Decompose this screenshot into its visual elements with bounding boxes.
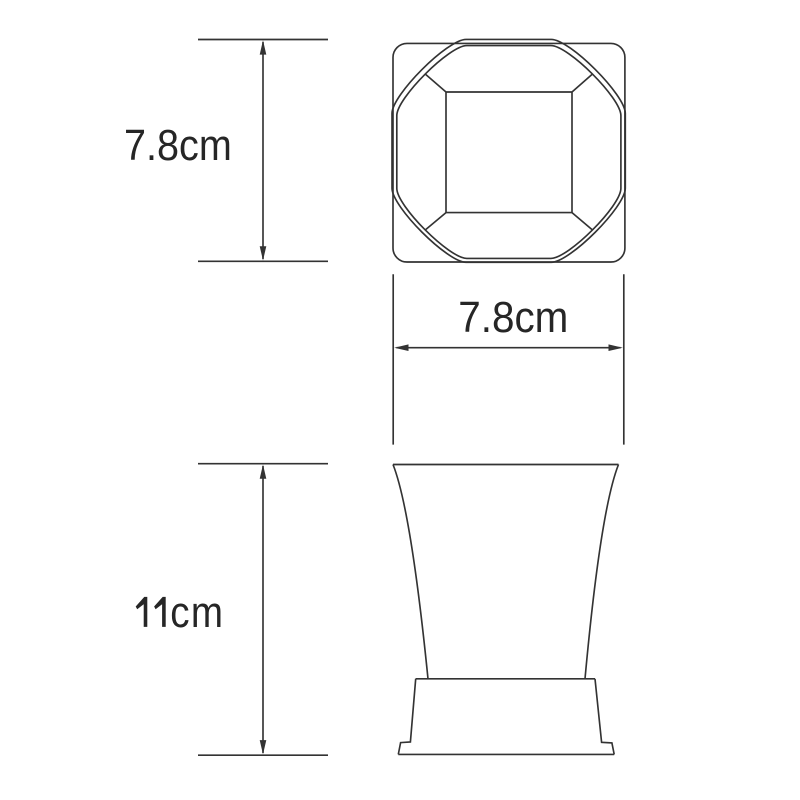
svg-text:7.8cm: 7.8cm	[458, 293, 568, 342]
svg-text:cm: cm	[170, 588, 224, 637]
svg-text:7.8cm: 7.8cm	[124, 120, 232, 169]
